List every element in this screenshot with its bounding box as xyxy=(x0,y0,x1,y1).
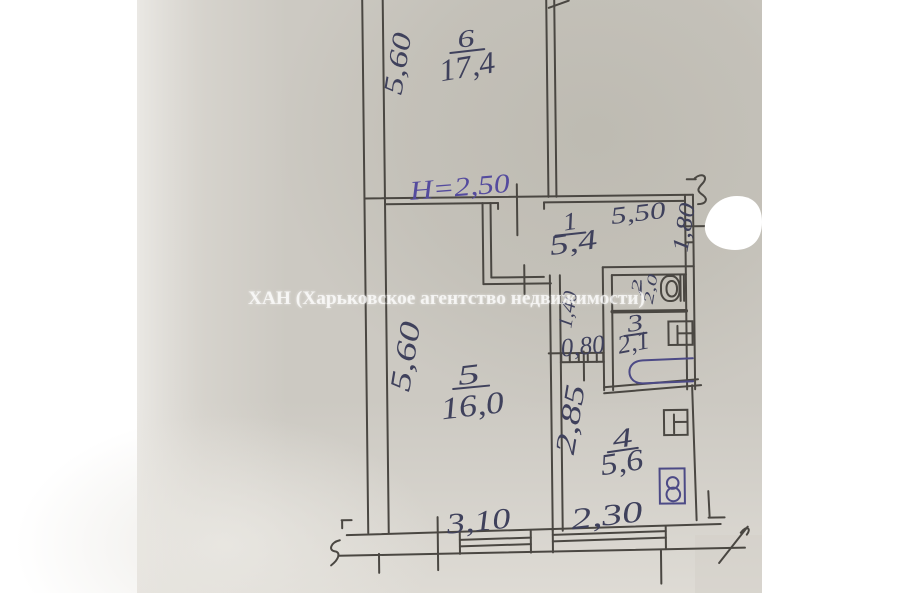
svg-text:0,80: 0,80 xyxy=(559,329,606,362)
svg-text:ХАН (Харьковское агентство нед: ХАН (Харьковское агентство недвижимости) xyxy=(248,288,645,309)
svg-text:5,6: 5,6 xyxy=(598,443,645,482)
svg-text:3,10: 3,10 xyxy=(444,503,513,541)
svg-text:2,1: 2,1 xyxy=(615,325,652,359)
svg-text:16,0: 16,0 xyxy=(439,384,506,426)
